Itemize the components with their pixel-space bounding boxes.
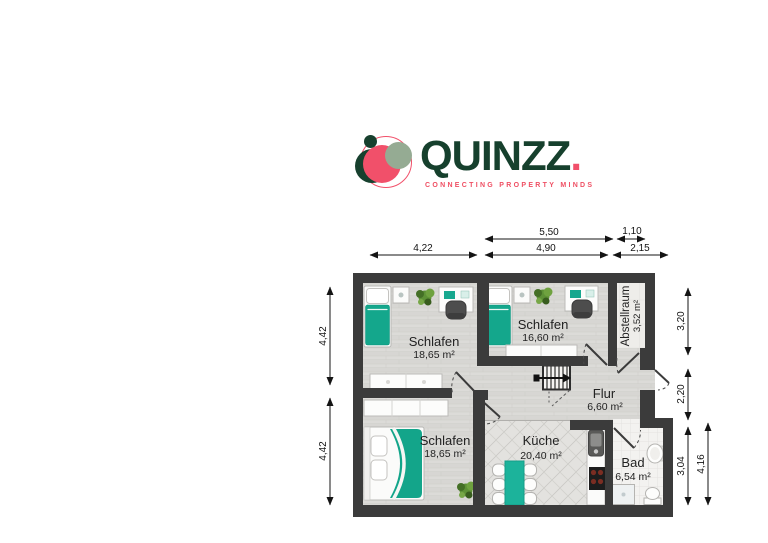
label-schlafen1-name: Schlafen xyxy=(409,334,460,349)
toilet-icon xyxy=(644,488,661,505)
dim-220: 2,20 xyxy=(676,384,687,404)
dim-416: 4,16 xyxy=(696,454,707,474)
wall-schlafen3-right xyxy=(473,398,485,505)
dim-490: 4,90 xyxy=(536,243,556,254)
wall-abstellraum-corner xyxy=(640,348,655,370)
wall-schlafen1-bottom xyxy=(353,388,452,398)
dim-422: 4,22 xyxy=(413,243,433,254)
wall-kueche-bad-divider xyxy=(605,420,613,505)
logo-small-dot xyxy=(364,135,377,148)
wall-top xyxy=(353,273,655,283)
brand-dot: . xyxy=(570,132,581,179)
label-abstellraum-name: Abstellraum xyxy=(620,286,632,347)
bathroom-sink-icon xyxy=(647,444,663,463)
dresser-icon xyxy=(364,400,448,416)
brand-wordmark: QUINZZ. xyxy=(420,133,581,181)
logo-sage-circle xyxy=(385,142,412,169)
brand-logo-icon xyxy=(356,133,414,191)
bed-icon xyxy=(485,286,512,347)
wall-room-divider-top xyxy=(477,283,489,366)
brand-logo: QUINZZ. CONNECTING PROPERTY MINDS xyxy=(356,133,606,195)
label-kueche-area: 20,40 m² xyxy=(520,450,562,462)
stairs-arrow-tail xyxy=(534,375,540,382)
wall-bottom xyxy=(353,505,673,517)
floor-plan: Schlafen 18,65 m² Schlafen 16,60 m² Abst… xyxy=(0,0,768,543)
dim-110: 1,10 xyxy=(622,226,642,237)
label-flur-name: Flur xyxy=(593,386,616,401)
dim-550: 5,50 xyxy=(539,227,559,238)
wall-right-mid xyxy=(640,390,655,420)
kitchen-counter-icon xyxy=(587,423,605,505)
label-schlafen2-area: 16,60 m² xyxy=(522,332,564,344)
dim-215: 2,15 xyxy=(630,243,650,254)
floor-schlafen2-doorway xyxy=(588,356,608,366)
stove-icon xyxy=(589,467,605,490)
label-schlafen3-area: 18,65 m² xyxy=(424,448,466,460)
nightstand-icon xyxy=(393,287,409,303)
dim-442-lower: 4,42 xyxy=(318,441,329,461)
wall-schlafen2-bottom xyxy=(477,356,588,366)
page: QUINZZ. CONNECTING PROPERTY MINDS xyxy=(0,0,768,543)
label-schlafen2-name: Schlafen xyxy=(518,317,569,332)
dim-304: 3,04 xyxy=(676,456,687,476)
wall-abstellraum-left xyxy=(608,283,617,366)
label-abstellraum-area: 3,52 m² xyxy=(632,300,643,332)
brand-tagline: CONNECTING PROPERTY MINDS xyxy=(425,182,594,189)
bed-icon xyxy=(364,286,391,347)
shower-icon xyxy=(613,485,635,505)
double-bed-icon xyxy=(364,427,424,500)
dining-set-icon xyxy=(493,461,537,505)
label-kueche-name: Küche xyxy=(523,433,560,448)
label-bad-area: 6,54 m² xyxy=(615,471,651,483)
door-entrance xyxy=(655,370,669,390)
label-flur-area: 6,60 m² xyxy=(587,401,623,413)
floor-entrance-doorway xyxy=(645,370,655,390)
wall-bad-right xyxy=(663,418,673,517)
label-bad-name: Bad xyxy=(621,455,644,470)
nightstand-icon xyxy=(514,287,530,303)
brand-text: QUINZZ xyxy=(420,132,570,179)
floor-bad-doorway xyxy=(613,419,640,428)
dim-320: 3,20 xyxy=(676,311,687,331)
label-schlafen3-name: Schlafen xyxy=(420,433,471,448)
label-schlafen1-area: 18,65 m² xyxy=(413,349,455,361)
dim-442-upper: 4,42 xyxy=(318,326,329,346)
